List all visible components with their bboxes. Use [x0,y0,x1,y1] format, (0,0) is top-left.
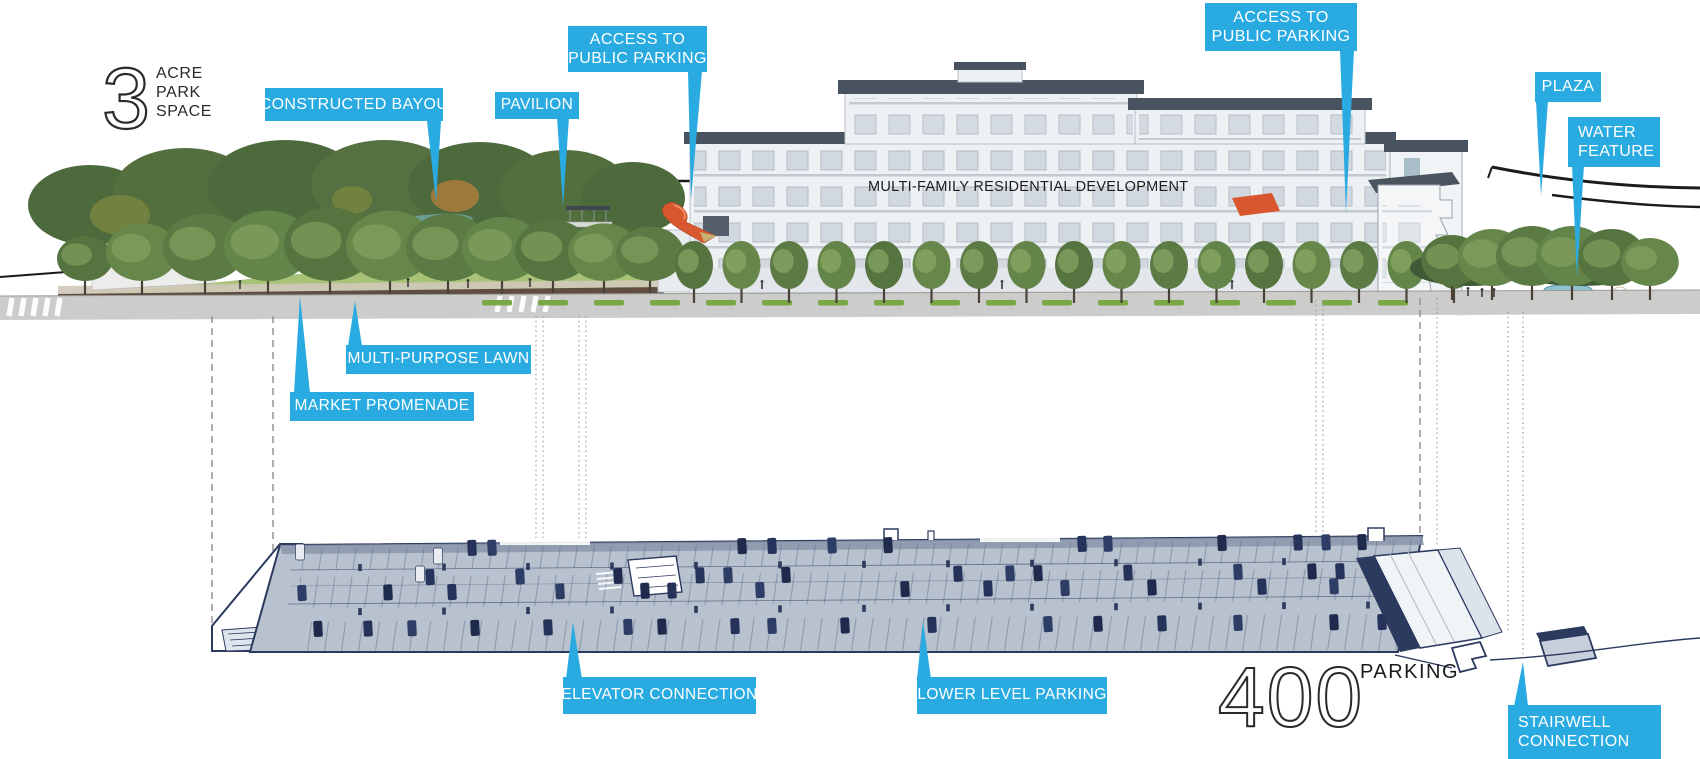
column [1198,603,1202,610]
car [983,580,993,596]
hedge [874,300,904,306]
callout-constructed-bayou: CONSTRUCTED BAYOU [265,88,443,121]
site-section-diagram: 3 400 ACRE PARK SPACE MULTI-FAMILY RESID… [0,0,1700,759]
car [515,568,525,584]
callout-access-public-parking-right: ACCESS TO PUBLIC PARKING [1205,3,1357,51]
callout-stairwell-connection: STAIRWELL CONNECTION [1508,705,1661,759]
car [883,537,893,553]
callout-access-public-parking-left: ACCESS TO PUBLIC PARKING [568,26,707,72]
column [1114,603,1118,610]
car [723,567,733,583]
car [900,581,910,597]
car [1103,536,1113,552]
column [1030,560,1034,567]
stem-plaza [1536,101,1548,196]
car [1307,563,1317,579]
car [1321,534,1331,550]
car [555,583,565,599]
callout-line: ACCESS TO [1233,8,1328,27]
parking-count: 400 [1218,650,1364,744]
callout-line: WATER [1578,123,1636,142]
car [1293,534,1303,550]
stairwell-ramp-structures [1356,548,1700,672]
roof-band [1128,98,1372,110]
hedge [706,300,736,306]
hedge [650,300,680,306]
column [1030,604,1034,611]
car [737,538,747,554]
column [610,562,614,569]
road-curve [1492,167,1700,188]
hedge [930,300,960,306]
callout-market-promenade: MARKET PROMENADE [290,392,474,421]
callout-elevator-connection: ELEVATOR CONNECTION [563,677,756,714]
car [1060,580,1070,596]
column [358,564,362,571]
acre-line: ACRE [156,64,212,83]
street-curb-line [0,272,66,277]
car [695,567,705,583]
car [1147,579,1157,595]
hedge [1378,300,1408,306]
column [862,605,866,612]
parking-count-label: PARKING [1360,661,1459,684]
park-scene [0,62,1700,320]
car [425,569,435,585]
column [946,560,950,567]
hedge [482,300,512,306]
car [1233,615,1243,631]
car [407,620,417,636]
column [1198,559,1202,566]
car [927,617,937,633]
car [667,582,677,598]
car [1335,563,1345,579]
callout-line: PUBLIC PARKING [1212,27,1351,46]
car [543,619,553,635]
car [1093,616,1103,632]
column [862,561,866,568]
callout-line: ACCESS TO [590,30,685,49]
column [442,564,446,571]
column [1114,559,1118,566]
hedge [986,300,1016,306]
car [1257,579,1267,595]
car [1157,615,1167,631]
car [467,540,477,556]
car [1329,614,1339,630]
column [358,608,362,615]
column [526,563,530,570]
dotted-connector [536,316,543,555]
car [767,538,777,554]
callout-plaza: PLAZA [1535,72,1601,102]
callout-line: CONNECTION [1518,732,1630,751]
car [297,585,307,601]
hedge [818,300,848,306]
callout-pavilion: PAVILION [495,92,579,119]
car [383,584,393,600]
car [613,568,623,584]
hedge [538,300,568,306]
column [1282,558,1286,565]
car [657,618,667,634]
column [1282,602,1286,609]
car [755,582,765,598]
lower-parking-deck [212,528,1700,672]
car [1033,565,1043,581]
car [640,583,650,599]
callout-lower-level-parking: LOWER LEVEL PARKING [917,677,1107,714]
car [487,540,497,556]
acre-count: 3 [102,51,150,147]
acre-park-space-label: ACRE PARK SPACE [156,64,212,121]
car [363,620,373,636]
car [840,617,850,633]
car [767,618,777,634]
callout-line: PUBLIC PARKING [568,49,707,68]
hedge [1210,300,1240,306]
column [442,608,446,615]
callout-multi-purpose-lawn: MULTI-PURPOSE LAWN [346,345,531,374]
car [434,548,443,564]
column [778,561,782,568]
car [953,565,963,581]
street-hedges [482,300,1408,306]
hedge [1266,300,1296,306]
vent-notch [1368,528,1384,541]
car [781,567,791,583]
column [1366,602,1370,609]
car [313,621,323,637]
hedge [1322,300,1352,306]
car [827,537,837,553]
column [778,605,782,612]
dotted-connector [1508,312,1523,658]
car [730,618,740,634]
car [1217,535,1227,551]
car [1005,565,1015,581]
building-label: MULTI-FAMILY RESIDENTIAL DEVELOPMENT [868,179,1188,195]
hedge [594,300,624,306]
car [470,620,480,636]
callout-line: STAIRWELL [1518,713,1611,732]
callout-line: FEATURE [1578,142,1654,161]
car [1357,534,1367,550]
column [694,562,698,569]
hedge [1098,300,1128,306]
acre-line: SPACE [156,102,212,121]
vent-notch [928,531,934,540]
car [1123,564,1133,580]
car [447,584,457,600]
callout-water-feature: WATER FEATURE [1568,117,1660,167]
column [946,604,950,611]
acre-line: PARK [156,83,212,102]
car [623,619,633,635]
column [610,606,614,613]
car [1043,616,1053,632]
car [1329,578,1339,594]
car [1233,564,1243,580]
car [1077,536,1087,552]
column [526,607,530,614]
car [416,566,425,582]
dotted-connector [579,316,586,553]
column [694,606,698,613]
tree-mass [431,180,479,212]
hedge [1042,300,1072,306]
stem-stairwell-connection [1514,662,1528,706]
hedge [762,300,792,306]
dotted-connector [1316,300,1323,535]
illustration-canvas: 3 400 [0,0,1700,759]
car [296,544,305,560]
